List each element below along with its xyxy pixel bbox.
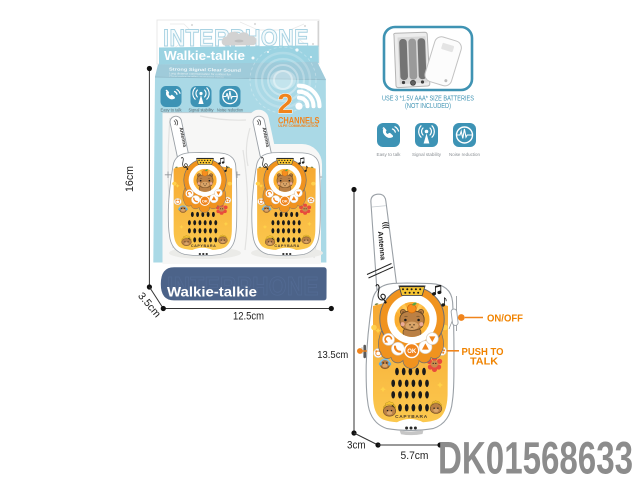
svg-text:5.7cm: 5.7cm [401,450,429,462]
svg-text:Walkie-talkie: Walkie-talkie [167,285,257,301]
svg-text:12.5cm: 12.5cm [233,310,264,322]
svg-text:Walkie-talkie: Walkie-talkie [164,48,245,63]
svg-text:Signal stability: Signal stability [189,108,215,113]
svg-text:Easy to talk: Easy to talk [377,152,402,158]
svg-text:(((: ((( [381,222,389,230]
svg-text:ULPE COMMUNICATION: ULPE COMMUNICATION [278,124,319,128]
svg-text:2: 2 [278,88,294,119]
svg-text:16cm: 16cm [124,166,136,192]
svg-text:Easy to talk: Easy to talk [161,108,183,113]
svg-text:ON/OFF: ON/OFF [487,313,523,324]
svg-text:3cm: 3cm [347,439,366,451]
svg-text:Noise reduction: Noise reduction [217,108,244,113]
svg-text:Signal stability: Signal stability [412,152,442,158]
svg-text:13.5cm: 13.5cm [317,349,348,361]
svg-text:DK01568633: DK01568633 [438,433,633,480]
svg-text:(NOT INCLUDED): (NOT INCLUDED) [405,103,451,110]
svg-text:USE 3 *1.5V AAA* SIZE BATTERIE: USE 3 *1.5V AAA* SIZE BATTERIES [382,96,474,103]
svg-text:TALK: TALK [470,356,499,367]
svg-text:Noise reduction: Noise reduction [449,152,480,158]
